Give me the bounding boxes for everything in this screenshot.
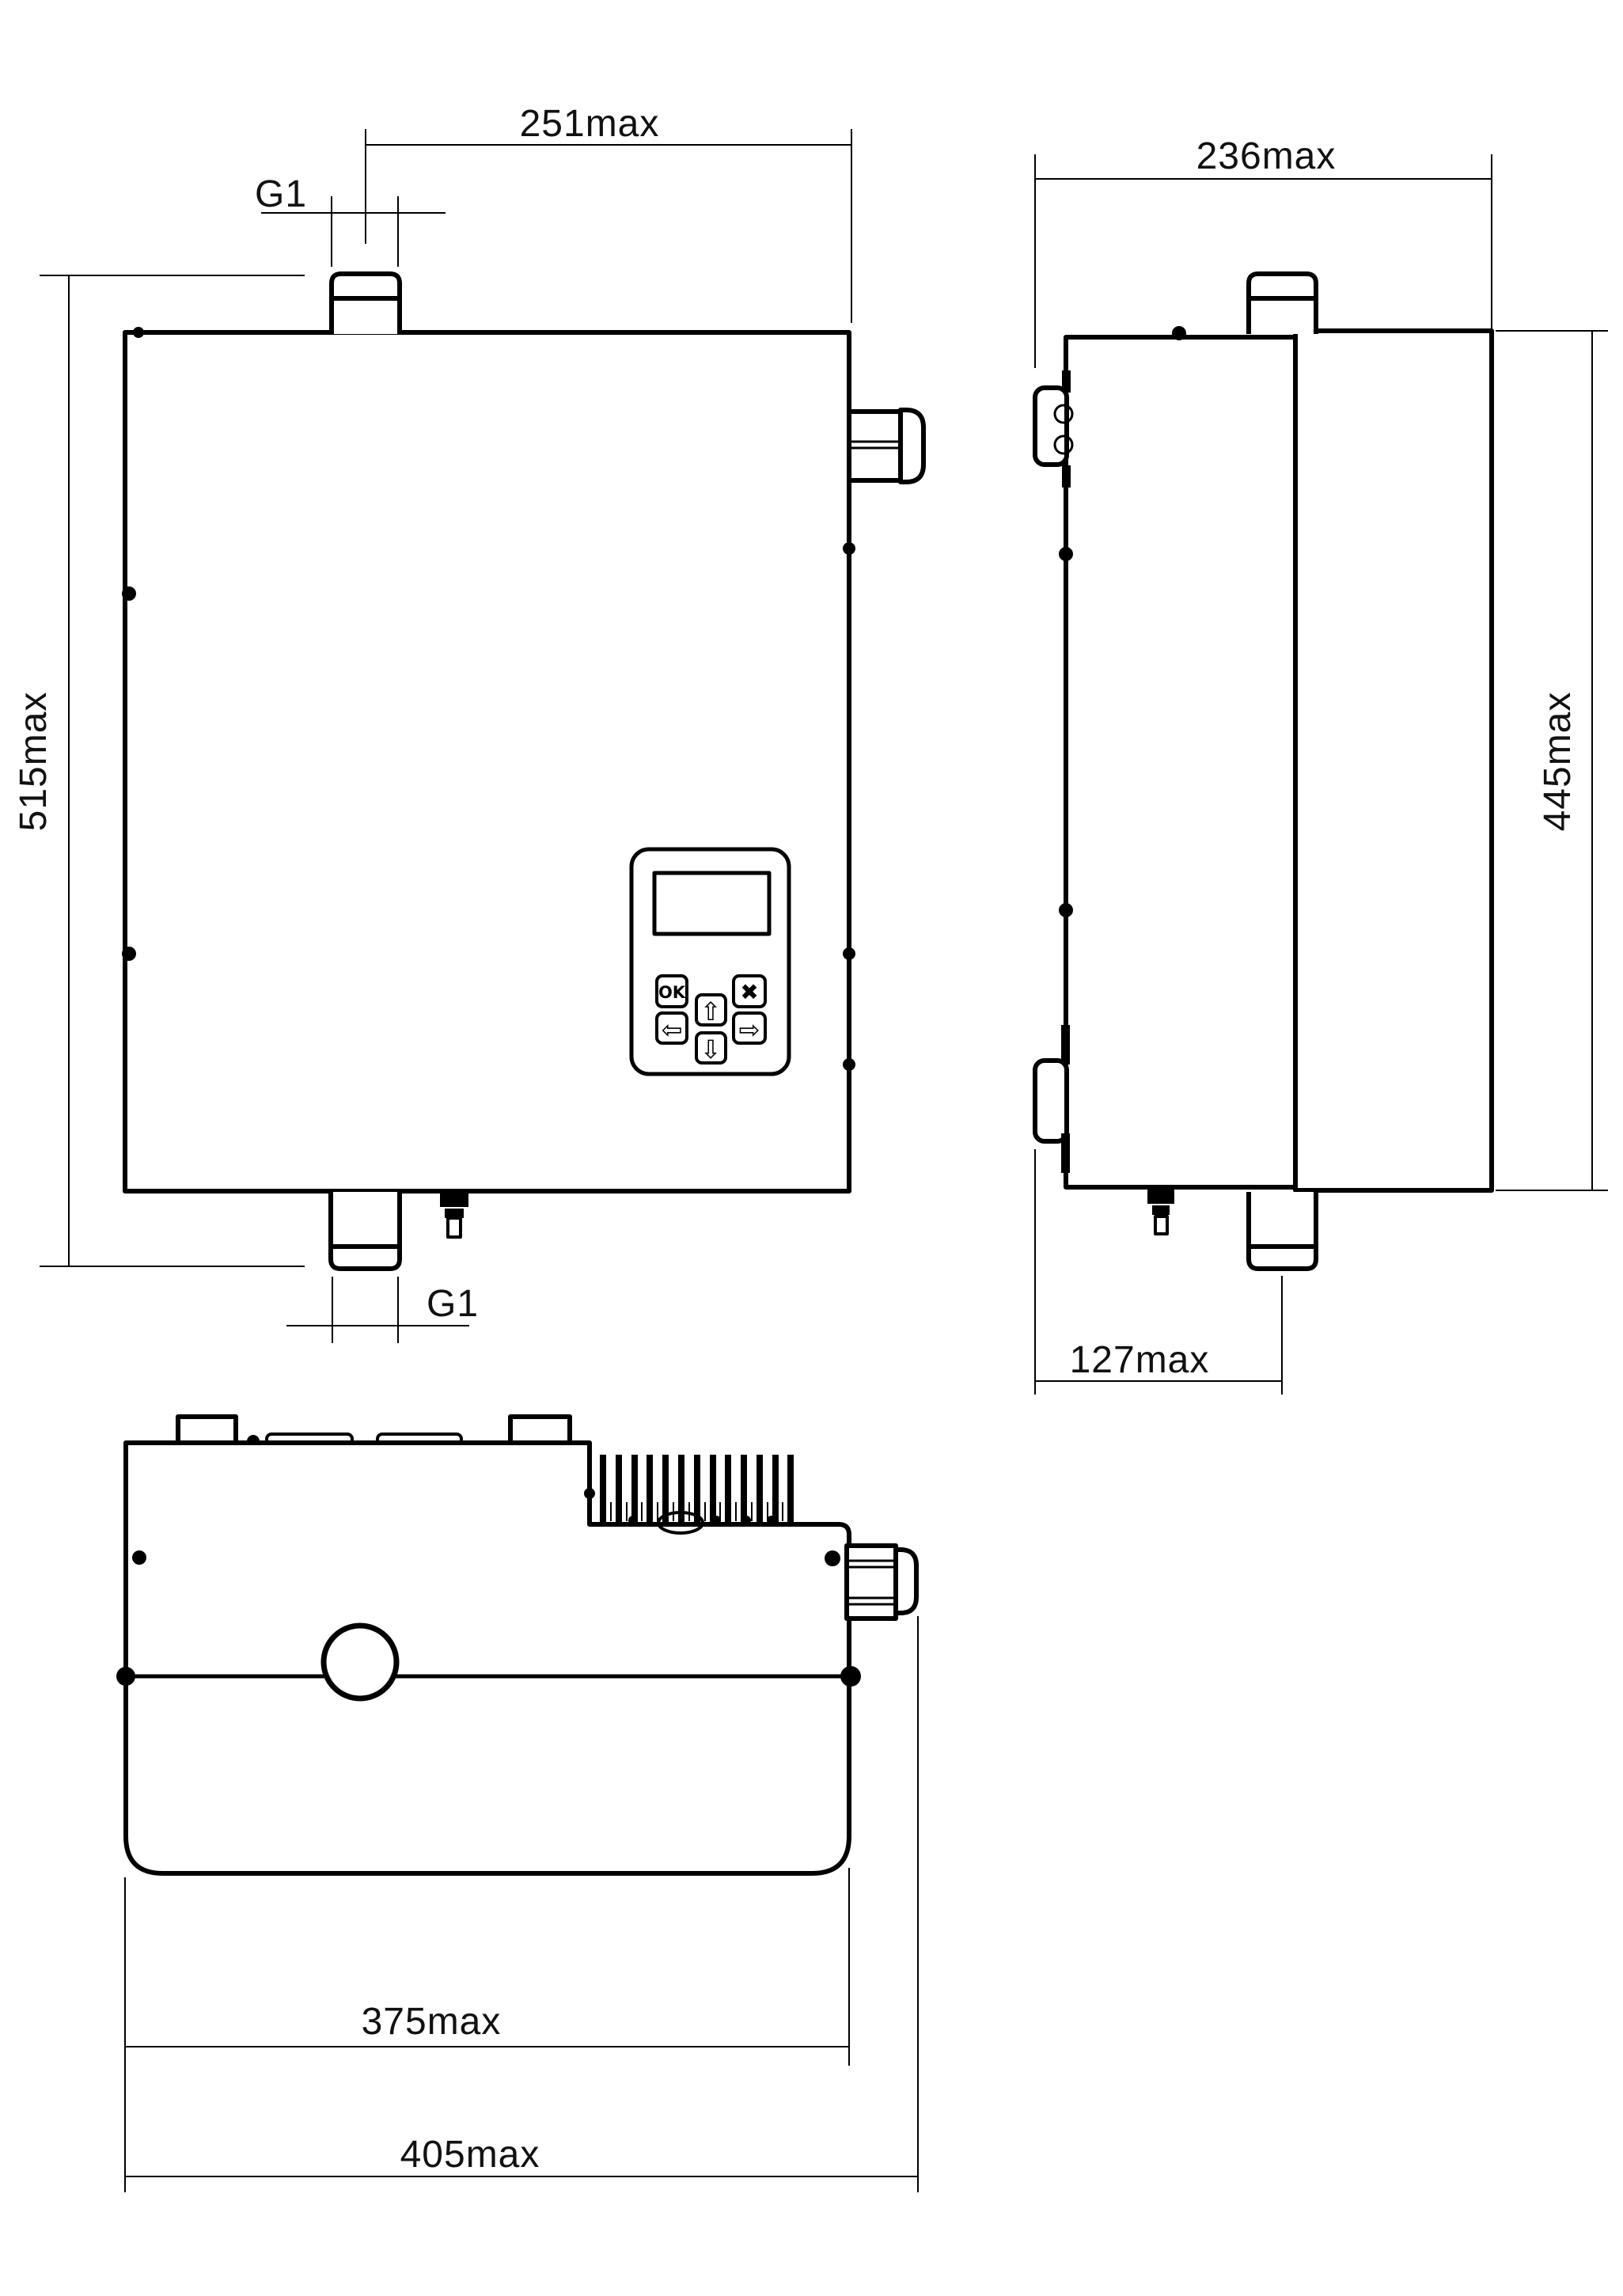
heatsink-fin xyxy=(662,1455,669,1522)
front-top-pipe xyxy=(332,274,400,334)
gland-body xyxy=(847,1546,896,1619)
heatsink-fin xyxy=(616,1455,622,1522)
heatsink xyxy=(584,1455,839,1533)
front-cable-gland xyxy=(849,410,923,482)
heatsink-fin xyxy=(787,1455,794,1522)
arrow-down-icon: ⇩ xyxy=(700,1034,722,1065)
heatsink-fin xyxy=(741,1455,747,1522)
front-view: OK ✖ ⇧ ⇦ ⇨ ⇩ xyxy=(13,103,923,1343)
dim-side-height: 445max xyxy=(1496,331,1608,1190)
valve-stem xyxy=(1155,1216,1167,1234)
valve-nut xyxy=(440,1191,468,1207)
pipe-circle-top-view xyxy=(324,1626,396,1698)
side-upper-connector xyxy=(1035,370,1072,488)
arrow-right-icon: ⇨ xyxy=(739,1015,760,1045)
edge-nub xyxy=(584,1488,595,1499)
clip-tab xyxy=(1061,1025,1070,1065)
edge-nub xyxy=(843,542,855,555)
screw-dot xyxy=(132,1550,146,1565)
up-button: ⇧ xyxy=(696,995,726,1027)
side-bottom-pipe xyxy=(1249,1192,1316,1269)
dim-label-236max: 236max xyxy=(1196,135,1337,177)
side-top-pipe xyxy=(1249,274,1316,334)
front-bottom-pipe xyxy=(331,1192,400,1269)
arrow-up-icon: ⇧ xyxy=(700,996,722,1027)
mount-tab xyxy=(178,1417,236,1443)
heatsink-fin xyxy=(772,1455,779,1522)
arrow-left-icon: ⇦ xyxy=(662,1015,683,1045)
callout-g1-bottom: G1 xyxy=(286,1277,479,1343)
g1-bottom-label: G1 xyxy=(427,1283,479,1325)
cancel-button: ✖ xyxy=(734,976,765,1007)
control-panel: OK ✖ ⇧ ⇦ ⇨ ⇩ xyxy=(631,849,789,1074)
heatsink-fin xyxy=(757,1455,763,1522)
side-view: 236max 445max 127max xyxy=(1035,135,1608,1395)
seam-nub-left xyxy=(116,1667,135,1686)
display-screen xyxy=(654,873,769,934)
heatsink-fin xyxy=(694,1455,700,1522)
screw-dot xyxy=(122,947,136,961)
top-view-outline xyxy=(126,1443,849,1873)
left-button: ⇦ xyxy=(657,1013,687,1045)
gland-cap xyxy=(896,1550,916,1613)
technical-drawing-page: OK ✖ ⇧ ⇦ ⇨ ⇩ xyxy=(0,0,1623,2296)
right-button: ⇨ xyxy=(734,1013,765,1045)
dim-label-445max: 445max xyxy=(1537,692,1579,832)
cancel-x-icon: ✖ xyxy=(740,979,758,1005)
side-wall-plate xyxy=(1295,331,1492,1190)
heatsink-fins xyxy=(600,1455,794,1522)
edge-nub xyxy=(1172,326,1186,340)
dim-label-405max: 405max xyxy=(400,2134,540,2176)
heatsink-fin xyxy=(631,1455,638,1522)
heatsink-fin xyxy=(600,1455,606,1522)
valve-nut xyxy=(1147,1190,1174,1204)
dim-label-127max: 127max xyxy=(1070,1339,1210,1381)
dim-label-375max: 375max xyxy=(362,2001,502,2043)
screw-dot xyxy=(122,586,136,601)
edge-nub xyxy=(843,947,855,960)
clip-tab xyxy=(1061,1133,1070,1173)
side-lower-connector xyxy=(1035,1025,1070,1173)
boiler-dimension-drawing: OK ✖ ⇧ ⇦ ⇨ ⇩ xyxy=(0,0,1623,2296)
edge-nub xyxy=(843,1058,855,1071)
heatsink-fin xyxy=(710,1455,716,1522)
screw-dot xyxy=(133,327,144,338)
dim-label-251max: 251max xyxy=(520,103,660,145)
gland-cap xyxy=(901,410,923,482)
g1-top-label: G1 xyxy=(255,173,307,215)
callout-g1-top: G1 xyxy=(255,173,446,267)
ok-button: OK xyxy=(657,976,687,1007)
screw-dot xyxy=(1059,547,1073,561)
heatsink-fin xyxy=(678,1455,684,1522)
down-button: ⇩ xyxy=(696,1033,726,1065)
valve-collar xyxy=(1152,1205,1170,1215)
front-drain-valve xyxy=(440,1191,468,1237)
mount-tab xyxy=(510,1417,570,1443)
screw-dot xyxy=(825,1550,840,1566)
side-body-outline xyxy=(1066,337,1295,1187)
gland-body xyxy=(849,412,901,480)
dim-label-515max: 515max xyxy=(13,692,55,832)
side-drain-valve xyxy=(1147,1190,1174,1234)
ok-button-label: OK xyxy=(658,983,686,1002)
seam-nub-right xyxy=(840,1666,861,1687)
connector-housing xyxy=(1035,1061,1067,1141)
heatsink-fin xyxy=(725,1455,731,1522)
top-view-cable-gland xyxy=(847,1546,916,1619)
clip-tab xyxy=(1062,465,1071,488)
screw-dot xyxy=(1059,903,1073,917)
heatsink-fin xyxy=(647,1455,653,1522)
top-view: 375max 405max xyxy=(116,1417,918,2192)
valve-stem xyxy=(448,1218,461,1237)
